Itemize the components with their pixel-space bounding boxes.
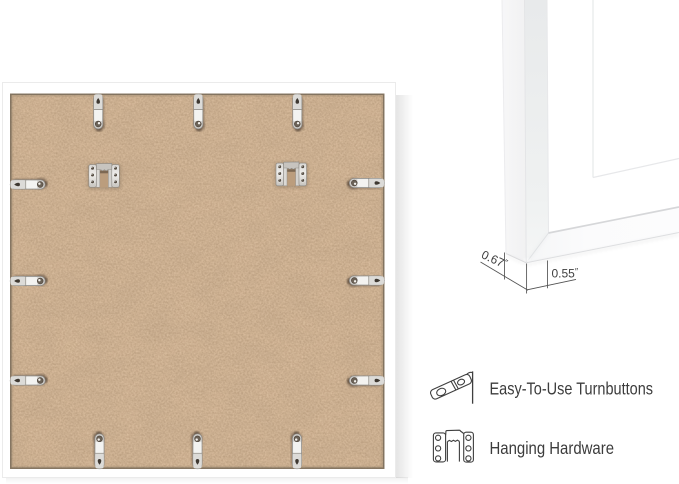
svg-text:0.55″: 0.55″ (552, 267, 579, 281)
svg-text:Hanging Hardware: Hanging Hardware (490, 438, 615, 458)
svg-text:Easy-To-Use Turnbuttons: Easy-To-Use Turnbuttons (490, 379, 654, 399)
